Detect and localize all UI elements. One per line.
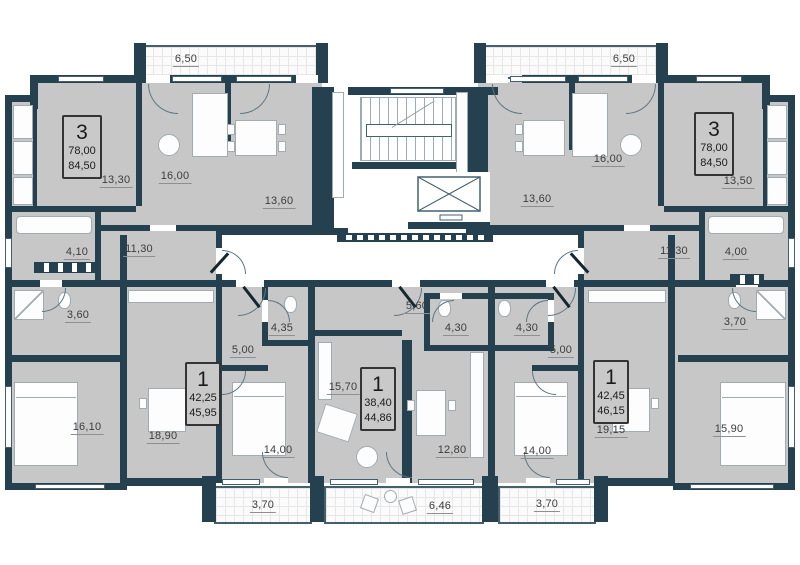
kitchen-counter bbox=[128, 290, 214, 303]
outside-patch bbox=[770, 82, 788, 95]
stair-landing bbox=[366, 124, 452, 137]
window bbox=[788, 386, 795, 448]
chair bbox=[515, 141, 523, 152]
room-area-label: 4,35 bbox=[269, 322, 295, 336]
room-area-label: 11,30 bbox=[123, 243, 155, 257]
room-area-label: 12,80 bbox=[436, 444, 469, 458]
room-area-label: 4,00 bbox=[723, 246, 749, 260]
wall bbox=[605, 478, 675, 486]
room-area-label: 5,00 bbox=[548, 344, 574, 358]
wall bbox=[33, 102, 37, 212]
chair bbox=[227, 124, 235, 135]
elevator bbox=[410, 172, 490, 222]
door-opening bbox=[526, 478, 550, 486]
wardrobe-strip bbox=[730, 274, 764, 285]
apartment-card-bottom-right: 1 42,45 46,15 bbox=[593, 360, 629, 424]
wall bbox=[308, 287, 315, 483]
window bbox=[222, 479, 260, 485]
window bbox=[556, 479, 590, 485]
chair bbox=[139, 398, 147, 409]
wall bbox=[699, 212, 705, 280]
window bbox=[236, 76, 292, 82]
door-opening bbox=[440, 293, 462, 299]
apartment-card-top-right: 3 78,00 84,50 bbox=[694, 112, 734, 176]
wall bbox=[762, 95, 795, 102]
window bbox=[172, 76, 222, 82]
door-opening bbox=[486, 75, 508, 83]
wall bbox=[424, 345, 488, 351]
apartment-living-area: 42,45 bbox=[597, 389, 625, 403]
room-area-label: 16,10 bbox=[71, 421, 104, 435]
wall bbox=[488, 287, 495, 483]
chair bbox=[278, 124, 286, 135]
bathtub bbox=[16, 216, 92, 234]
room-area-label: 14,00 bbox=[521, 445, 554, 459]
wardrobe bbox=[13, 141, 33, 175]
kitchen-counter bbox=[470, 352, 484, 458]
wardrobe bbox=[13, 105, 33, 139]
bed-pillow bbox=[234, 384, 284, 397]
armchair bbox=[356, 446, 378, 468]
wall bbox=[352, 162, 466, 169]
room-area-label: 16,00 bbox=[159, 170, 192, 184]
wall bbox=[95, 225, 312, 231]
window bbox=[35, 484, 105, 489]
door-opening bbox=[236, 280, 264, 287]
wardrobe bbox=[767, 105, 787, 139]
chair bbox=[515, 124, 523, 135]
toilet bbox=[498, 300, 511, 317]
window bbox=[510, 76, 566, 82]
room-area-label: 18,90 bbox=[147, 430, 180, 444]
room-area-label: 14,00 bbox=[262, 444, 295, 458]
apartment-living-area: 78,00 bbox=[68, 144, 96, 158]
apartment-rooms-count: 3 bbox=[76, 121, 88, 144]
apartment-rooms-count: 1 bbox=[605, 366, 617, 389]
window bbox=[330, 479, 378, 485]
wall bbox=[262, 340, 314, 346]
chair bbox=[651, 398, 659, 409]
door-opening bbox=[264, 478, 288, 486]
apartment-living-area: 78,00 bbox=[700, 141, 728, 155]
balcony-table bbox=[384, 490, 397, 503]
room-area-label: 4,10 bbox=[64, 246, 90, 260]
door-opening bbox=[392, 280, 420, 287]
chair bbox=[448, 400, 456, 411]
room-area-label: 15,70 bbox=[327, 381, 360, 395]
elevator-icon bbox=[410, 172, 490, 222]
room-area-label: 5,00 bbox=[230, 344, 256, 358]
apartment-total-area: 84,50 bbox=[700, 156, 728, 170]
room-area-label: 4,30 bbox=[514, 322, 540, 336]
sofa bbox=[192, 93, 228, 157]
door-opening bbox=[546, 280, 574, 287]
apartment-card-top-left: 3 78,00 84,50 bbox=[62, 115, 102, 179]
room-area-label: 5,60 bbox=[404, 300, 430, 314]
window bbox=[788, 238, 795, 268]
shower bbox=[14, 290, 44, 320]
wall bbox=[664, 206, 788, 212]
wall bbox=[668, 235, 675, 485]
window bbox=[418, 479, 474, 485]
room-area-label: 13,60 bbox=[521, 193, 554, 207]
wall bbox=[120, 478, 214, 486]
wall bbox=[136, 82, 142, 206]
wall bbox=[12, 355, 122, 362]
wall bbox=[658, 82, 664, 206]
kitchen-counter bbox=[332, 92, 344, 198]
room-area-label: 3,70 bbox=[534, 498, 560, 512]
balcony-top-left bbox=[142, 45, 320, 79]
wall bbox=[312, 87, 334, 233]
outside-patch bbox=[12, 82, 30, 95]
wall bbox=[5, 95, 38, 102]
wardrobe bbox=[13, 177, 33, 205]
wardrobe bbox=[767, 177, 787, 205]
chair bbox=[407, 400, 415, 411]
door-opening bbox=[146, 75, 170, 83]
room-area-label: 6,46 bbox=[427, 500, 453, 514]
room-area-label: 4,30 bbox=[443, 322, 469, 336]
apartment-total-area: 46,15 bbox=[597, 404, 625, 418]
apartment-total-area: 84,50 bbox=[68, 159, 96, 173]
room-area-label: 16,00 bbox=[592, 153, 625, 167]
room-area-label: 6,50 bbox=[611, 53, 637, 67]
kitchen-counter bbox=[588, 290, 666, 303]
threshold-grille bbox=[337, 233, 493, 242]
wall bbox=[488, 293, 554, 299]
wall bbox=[315, 330, 402, 336]
wall bbox=[488, 345, 554, 351]
window bbox=[696, 76, 742, 82]
window bbox=[5, 386, 12, 448]
sofa bbox=[572, 93, 608, 157]
apartment-rooms-count: 3 bbox=[708, 118, 720, 141]
room-area-label: 3,60 bbox=[65, 309, 91, 323]
wardrobe-strip bbox=[34, 262, 96, 273]
wall bbox=[678, 355, 788, 362]
apartment-rooms-count: 1 bbox=[197, 368, 209, 391]
window bbox=[58, 76, 104, 82]
window bbox=[390, 88, 444, 94]
wardrobe bbox=[767, 141, 787, 175]
apartment-living-area: 38,40 bbox=[364, 396, 392, 410]
apartment-total-area: 44,86 bbox=[364, 411, 392, 425]
dining-table bbox=[523, 120, 565, 156]
room-area-label: 6,50 bbox=[173, 53, 199, 67]
dining-table bbox=[235, 120, 277, 156]
door-opening bbox=[386, 478, 410, 486]
bed-pillow bbox=[722, 384, 784, 398]
wall bbox=[488, 225, 705, 231]
bed-pillow bbox=[16, 384, 76, 398]
dining-table bbox=[148, 388, 186, 432]
door-opening bbox=[296, 75, 318, 83]
apartment-living-area: 42,25 bbox=[189, 391, 217, 405]
door-opening bbox=[40, 280, 62, 287]
shower bbox=[756, 290, 786, 320]
room-area-label: 15,90 bbox=[713, 423, 746, 437]
apartment-card-bottom-left: 1 42,25 45,95 bbox=[185, 362, 221, 426]
coffee-table bbox=[158, 134, 180, 156]
room-area-label: 19,15 bbox=[595, 424, 628, 438]
door-opening bbox=[150, 225, 176, 231]
wall bbox=[578, 287, 584, 483]
room-area-label: 3,70 bbox=[722, 316, 748, 330]
room-area-label: 13,30 bbox=[100, 174, 133, 188]
apartment-card-bottom-center: 1 38,40 44,86 bbox=[360, 367, 396, 431]
dining-table bbox=[416, 390, 446, 436]
window bbox=[690, 484, 774, 489]
door-opening bbox=[624, 225, 650, 231]
floor-plan: 3 78,00 84,50 3 78,00 84,50 1 42,25 45,9… bbox=[0, 0, 800, 565]
room-area-label: 13,50 bbox=[722, 175, 755, 189]
window bbox=[578, 76, 628, 82]
apartment-total-area: 45,95 bbox=[189, 406, 217, 420]
door-opening bbox=[632, 75, 656, 83]
wall bbox=[408, 222, 490, 229]
room-area-label: 3,70 bbox=[250, 499, 276, 513]
wall bbox=[474, 43, 486, 83]
window bbox=[5, 238, 12, 268]
chair bbox=[227, 141, 235, 152]
apartment-rooms-count: 1 bbox=[372, 373, 384, 396]
wall bbox=[12, 206, 136, 212]
room-area-label: 11,30 bbox=[658, 245, 690, 259]
room-area-label: 13,60 bbox=[263, 195, 296, 209]
bathtub bbox=[708, 216, 784, 234]
chair bbox=[278, 141, 286, 152]
